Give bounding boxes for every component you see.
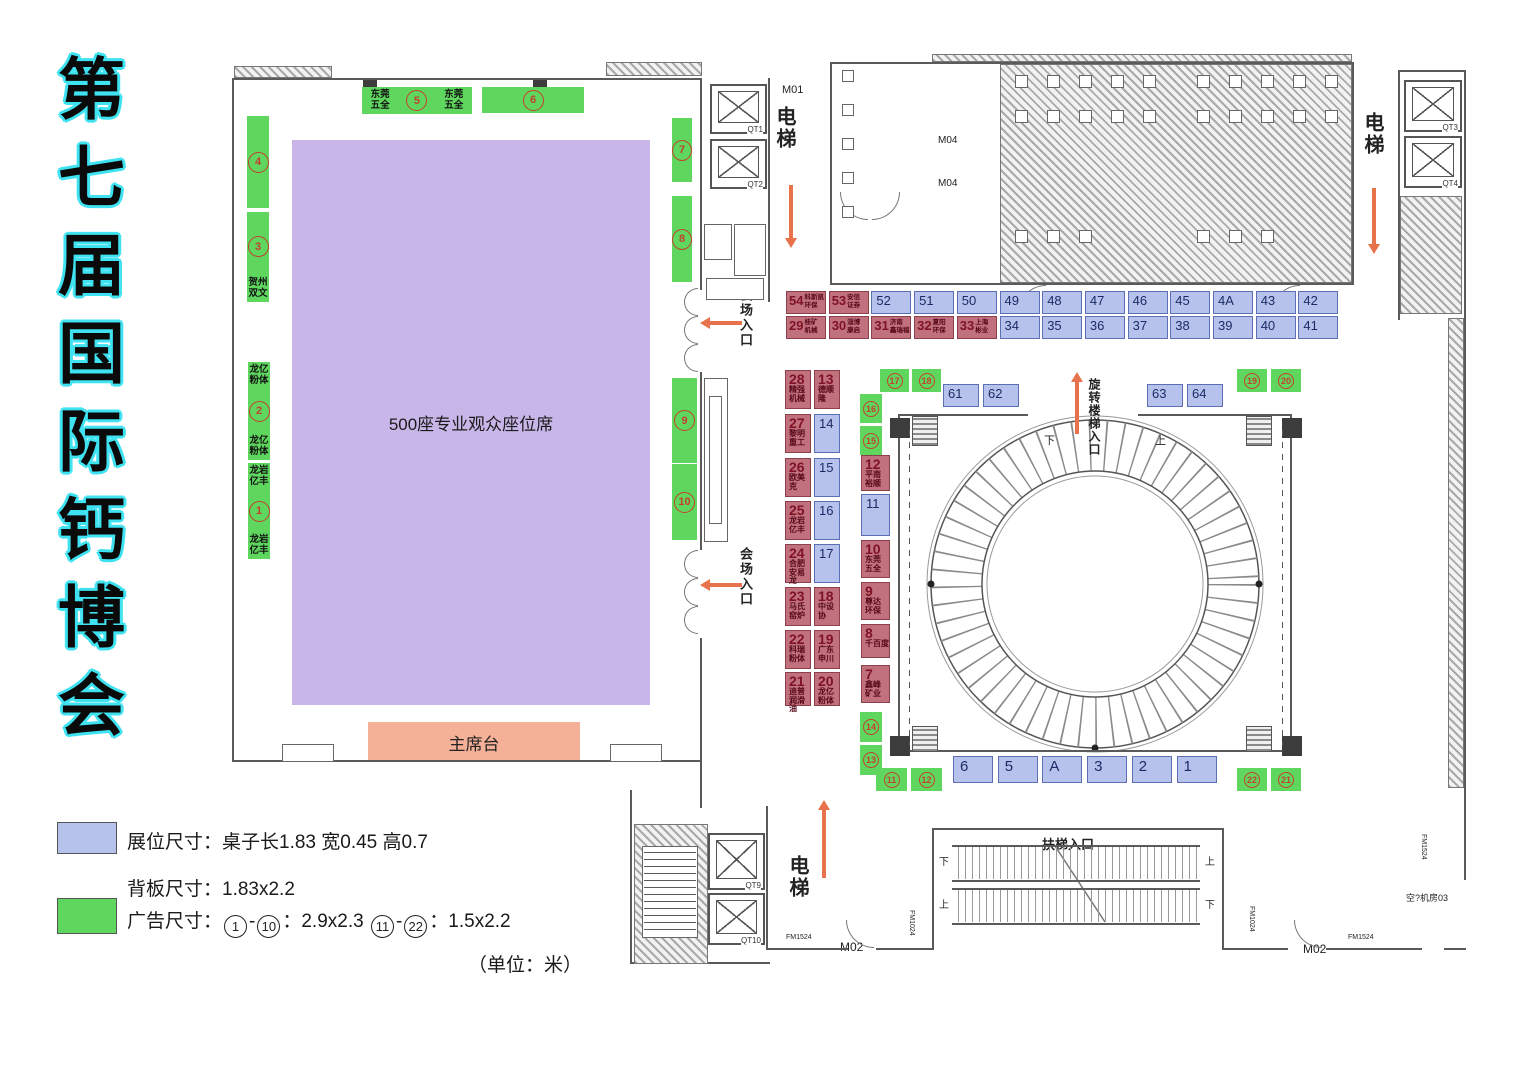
wall-segment bbox=[766, 806, 768, 950]
wall-segment bbox=[630, 790, 632, 964]
door-arc bbox=[684, 344, 698, 372]
elevator-id-label: QT3 bbox=[1442, 123, 1458, 132]
legend-ad-mid: ：2.9x2.3 bbox=[282, 911, 363, 932]
escalator-rung bbox=[1175, 890, 1176, 922]
escalator-rung bbox=[1056, 847, 1057, 879]
booth-1: 1 bbox=[1177, 756, 1217, 783]
elevator-cab bbox=[716, 900, 757, 934]
ad-small-16: 16 bbox=[860, 394, 882, 423]
ring-up-label: 上 bbox=[1155, 432, 1166, 448]
booth-31: 31济南鑫瑞福 bbox=[871, 316, 911, 339]
legend-ad-swatch bbox=[57, 898, 117, 934]
ad-number-circle: 9 bbox=[674, 410, 695, 431]
escalator-rung bbox=[979, 847, 980, 879]
escalator-up-left: 上 bbox=[939, 896, 949, 911]
escalator-rung bbox=[1014, 890, 1015, 922]
escalator-rung bbox=[1161, 890, 1162, 922]
booth-29: 29桂矿机械 bbox=[786, 316, 826, 339]
wall-segment bbox=[932, 828, 1224, 830]
elevator-cab bbox=[1412, 143, 1454, 177]
ad-number-circle: 11 bbox=[884, 772, 900, 788]
room-m04-b: M04 bbox=[938, 178, 957, 189]
booth-19: 19广东申川 bbox=[814, 630, 840, 669]
escalator-rung bbox=[1168, 890, 1169, 922]
banner-company-label: 贺州双文 bbox=[248, 278, 268, 299]
booth-22: 22科瑞粉体 bbox=[785, 630, 811, 669]
escalator-rung bbox=[1091, 847, 1092, 879]
furniture-item bbox=[1261, 75, 1274, 88]
ad-small-11: 11 bbox=[876, 768, 907, 791]
booth-company: 鑫峰矿业 bbox=[865, 681, 889, 698]
booth-18: 18中设协 bbox=[814, 587, 840, 626]
louver-block bbox=[1246, 726, 1272, 752]
ring-down-label: 下 bbox=[1044, 432, 1055, 448]
door-arc bbox=[1294, 920, 1322, 948]
escalator-down-left: 下 bbox=[939, 853, 949, 868]
ad-number-circle: 14 bbox=[863, 719, 879, 735]
escalator-rung bbox=[1105, 847, 1106, 879]
furniture-item bbox=[1015, 110, 1028, 123]
wall-segment bbox=[232, 78, 234, 762]
stair-tread bbox=[644, 915, 696, 916]
fm1524-bottom-right: FM1524 bbox=[1348, 934, 1374, 941]
spiral-staircase bbox=[890, 414, 1300, 754]
ad-number-circle: 10 bbox=[674, 492, 695, 513]
booth-54: 54科斯凯环保 bbox=[786, 291, 826, 314]
escalator-rung bbox=[1014, 847, 1015, 879]
title-char: 国 bbox=[58, 300, 125, 397]
elevator-cab bbox=[1412, 87, 1454, 121]
escalator-rung bbox=[1147, 847, 1148, 879]
elevator-id-label: QT9 bbox=[745, 881, 761, 890]
furniture-item bbox=[1015, 230, 1028, 243]
legend-ad-prefix: 广告尺寸： bbox=[127, 911, 222, 932]
booth-13: 13德顺隆 bbox=[814, 370, 840, 409]
booth-62: 62 bbox=[983, 384, 1019, 407]
booth-2: 2 bbox=[1132, 756, 1172, 783]
booth-14: 14 bbox=[814, 414, 840, 453]
elevator-cab bbox=[718, 91, 759, 123]
direction-arrow bbox=[1368, 188, 1380, 254]
ad-banner-5: 东莞五全5东莞五全 bbox=[362, 87, 472, 114]
furniture-item bbox=[842, 104, 854, 116]
title-char: 博 bbox=[58, 564, 125, 661]
hatched-area bbox=[1000, 64, 1352, 283]
legend-back-line: 背板尺寸：1.83x2.2 bbox=[127, 874, 295, 901]
furniture-item bbox=[1047, 75, 1060, 88]
booth-number: 29 bbox=[789, 319, 803, 332]
escalator-rung bbox=[1189, 847, 1190, 879]
booth-6: 6 bbox=[953, 756, 993, 783]
wall-segment bbox=[932, 828, 934, 950]
escalator-rung bbox=[1084, 847, 1085, 879]
escalator-rung bbox=[958, 847, 959, 879]
pillar-block bbox=[1282, 418, 1302, 438]
booth-number: 32 bbox=[917, 319, 931, 332]
furniture-item bbox=[1261, 230, 1274, 243]
ad-small-22: 22 bbox=[1237, 768, 1267, 791]
elevator-cab bbox=[716, 840, 757, 879]
furniture-item bbox=[1079, 75, 1092, 88]
ad-banner-9: 9 bbox=[672, 378, 697, 463]
booth-5: 5 bbox=[998, 756, 1038, 783]
escalator-rung bbox=[1056, 890, 1057, 922]
hatched-area bbox=[1448, 318, 1464, 788]
louver-block bbox=[912, 416, 938, 446]
ad-number-circle: 5 bbox=[406, 90, 427, 111]
hatched-area bbox=[932, 54, 1352, 62]
furniture-item bbox=[1293, 75, 1306, 88]
furniture-item bbox=[1325, 75, 1338, 88]
legend-ad-suffix: ：1.5x2.2 bbox=[429, 911, 510, 932]
pillar-block bbox=[890, 418, 910, 438]
escalator-rung bbox=[1000, 890, 1001, 922]
furniture-item bbox=[1079, 110, 1092, 123]
stair-tread bbox=[644, 852, 696, 853]
escalator-rung bbox=[1147, 890, 1148, 922]
booth-company: 上海彬业 bbox=[975, 319, 988, 334]
booth-3: 3 bbox=[1087, 756, 1127, 783]
escalator-rung bbox=[1077, 890, 1078, 922]
elevator-id-label: QT1 bbox=[747, 125, 763, 134]
booth-27: 27黎明重工 bbox=[785, 414, 811, 453]
ad-number-circle: 6 bbox=[523, 90, 544, 111]
escalator-rung bbox=[1007, 890, 1008, 922]
elevator-label-right: 电梯 bbox=[1358, 112, 1387, 156]
escalator-rung bbox=[1168, 847, 1169, 879]
title-char: 第 bbox=[58, 36, 125, 133]
escalator-rung bbox=[1063, 890, 1064, 922]
ad-banner-4: 4 bbox=[247, 116, 269, 208]
hatched-area bbox=[606, 62, 702, 76]
escalator-rung bbox=[1189, 890, 1190, 922]
escalator-rung bbox=[1154, 847, 1155, 879]
door-arc bbox=[872, 192, 900, 220]
fm1024-bottom-right: FM1024 bbox=[1248, 906, 1255, 932]
wall-segment bbox=[952, 880, 1200, 882]
banner-company-label: 龙亿粉体 bbox=[249, 365, 269, 386]
wall-segment bbox=[1224, 948, 1288, 950]
legend-circle-10: 10 bbox=[257, 915, 280, 938]
legend-unit: （单位：米） bbox=[468, 950, 582, 977]
booth-company: 夏阳环保 bbox=[933, 319, 946, 334]
booth-company: 德顺隆 bbox=[818, 386, 839, 403]
furniture-item bbox=[1261, 110, 1274, 123]
escalator-rung bbox=[986, 847, 987, 879]
booth-company: 桂矿机械 bbox=[804, 319, 817, 334]
elevator-qt2: QT2 bbox=[710, 139, 767, 189]
booth-35: 35 bbox=[1042, 316, 1082, 339]
escalator-rung bbox=[979, 890, 980, 922]
wall-segment bbox=[768, 948, 848, 950]
wall-segment bbox=[700, 638, 702, 762]
booth-company: 迪普润滑油 bbox=[789, 688, 810, 714]
ad-number-circle: 18 bbox=[919, 373, 935, 389]
ad-number-circle: 17 bbox=[887, 373, 903, 389]
wall-segment bbox=[1352, 62, 1354, 285]
title-char: 届 bbox=[58, 212, 125, 309]
legend-ad-dash1: - bbox=[249, 911, 255, 932]
wall-segment bbox=[700, 78, 702, 290]
booth-24: 24合肥安易龙 bbox=[785, 544, 811, 583]
escalator-rung bbox=[993, 847, 994, 879]
escalator-rung bbox=[1042, 890, 1043, 922]
escalator-rung bbox=[1028, 847, 1029, 879]
stair-tread bbox=[644, 873, 696, 874]
escalator-rung bbox=[1119, 890, 1120, 922]
escalator-rung bbox=[1000, 847, 1001, 879]
wall-segment bbox=[768, 78, 770, 302]
escalator-rung bbox=[1049, 890, 1050, 922]
stair-tread bbox=[644, 901, 696, 902]
wall-segment bbox=[952, 923, 1200, 925]
furniture-item bbox=[842, 206, 854, 218]
furniture-item bbox=[1229, 75, 1242, 88]
escalator-rung bbox=[1133, 847, 1134, 879]
escalator-rung bbox=[1049, 847, 1050, 879]
booth-company: 龙亿粉体 bbox=[818, 688, 839, 705]
direction-arrow bbox=[818, 800, 830, 878]
booth-company: 精强机械 bbox=[789, 386, 810, 403]
louver-block bbox=[1246, 416, 1272, 446]
escalator-rung bbox=[986, 890, 987, 922]
wall-segment bbox=[952, 888, 1200, 890]
escalator-rung bbox=[958, 890, 959, 922]
ad-small-21: 21 bbox=[1271, 768, 1301, 791]
booth-company: 科瑞粉体 bbox=[789, 646, 810, 663]
dashed-line bbox=[1282, 430, 1283, 745]
escalator-rung bbox=[1140, 847, 1141, 879]
booth-number: 53 bbox=[832, 294, 846, 307]
furniture-item bbox=[1197, 230, 1210, 243]
ad-banner-1: 龙岩亿丰1龙岩亿丰 bbox=[248, 463, 270, 559]
escalator-rung bbox=[1112, 890, 1113, 922]
stair-tread bbox=[644, 859, 696, 860]
booth-company: 广东申川 bbox=[818, 646, 839, 663]
booth-47: 47 bbox=[1085, 291, 1125, 314]
escalator-rung bbox=[1021, 890, 1022, 922]
furniture-item bbox=[1293, 110, 1306, 123]
escalator-rung bbox=[1196, 847, 1197, 879]
legend-ad-line: 广告尺寸：1-10：2.9x2.3 11-22：1.5x2.2 bbox=[127, 906, 511, 938]
booth-17: 17 bbox=[814, 544, 840, 583]
booth-company: 东莞五全 bbox=[865, 556, 889, 573]
wall-segment bbox=[700, 762, 702, 808]
escalator-rung bbox=[1175, 847, 1176, 879]
room-m01: M01 bbox=[782, 84, 803, 96]
escalator-rung bbox=[1126, 890, 1127, 922]
booth-company: 尊达环保 bbox=[865, 598, 889, 615]
booth-45: 45 bbox=[1170, 291, 1210, 314]
furniture-item bbox=[1015, 75, 1028, 88]
escalator-rung bbox=[965, 847, 966, 879]
stair-tread bbox=[644, 908, 696, 909]
legend-booth-swatch bbox=[57, 822, 117, 854]
furniture-item bbox=[1325, 110, 1338, 123]
furniture-item bbox=[1229, 110, 1242, 123]
legend-ad-dash2: - bbox=[396, 911, 402, 932]
escalator-rung bbox=[1035, 847, 1036, 879]
ad-small-20: 20 bbox=[1271, 369, 1301, 392]
booth-25: 25龙岩亿丰 bbox=[785, 501, 811, 540]
booth-50: 50 bbox=[957, 291, 997, 314]
booth-number: 30 bbox=[832, 319, 846, 332]
elevator-label-bottom: 电梯 bbox=[783, 855, 812, 899]
stage-door-unit bbox=[610, 744, 662, 762]
banner-company-label: 龙岩亿丰 bbox=[249, 466, 269, 487]
stair-tread bbox=[644, 887, 696, 888]
booth-number: 54 bbox=[789, 294, 803, 307]
booth-36: 36 bbox=[1085, 316, 1125, 339]
wall-segment bbox=[1290, 414, 1292, 752]
booth-37: 37 bbox=[1128, 316, 1168, 339]
door-arc bbox=[684, 578, 698, 606]
escalator-up-right: 上 bbox=[1205, 853, 1215, 868]
floorplan-page: 500座专业观众座位席 主席台 电梯 电梯 电梯 会场入口 会场入口 旋转楼梯入… bbox=[0, 0, 1527, 1080]
fm1524-bottom-left: FM1524 bbox=[786, 934, 812, 941]
booth-4A: 4A bbox=[1213, 291, 1253, 314]
seating-area: 500座专业观众座位席 bbox=[292, 140, 650, 705]
wall-segment bbox=[830, 283, 1354, 285]
room-machine: 空?机房03 bbox=[1406, 891, 1448, 904]
booth-company: 合肥安易龙 bbox=[789, 560, 810, 586]
escalator-rung bbox=[1028, 890, 1029, 922]
escalator-rung bbox=[1007, 847, 1008, 879]
elevator-qt3: QT3 bbox=[1404, 80, 1462, 132]
room-qd-box bbox=[734, 224, 766, 276]
booth-A: A bbox=[1042, 756, 1082, 783]
booth-38: 38 bbox=[1170, 316, 1210, 339]
escalator-rung bbox=[1182, 890, 1183, 922]
booth-company: 龙岩亿丰 bbox=[789, 517, 810, 534]
booth-company: 黎明重工 bbox=[789, 430, 810, 447]
dashed-line bbox=[909, 430, 910, 745]
booth-12: 12平南裕顺 bbox=[861, 455, 890, 491]
furniture-item bbox=[1047, 110, 1060, 123]
escalator-rung bbox=[1105, 890, 1106, 922]
furniture-item bbox=[1197, 75, 1210, 88]
booth-company: 济南鑫瑞福 bbox=[890, 319, 910, 334]
wall-segment bbox=[1398, 70, 1466, 72]
booth-32: 32夏阳环保 bbox=[914, 316, 954, 339]
booth-7: 7鑫峰矿业 bbox=[861, 665, 890, 703]
ad-number-circle: 13 bbox=[863, 752, 879, 768]
ad-small-19: 19 bbox=[1237, 369, 1267, 392]
escalator-rung bbox=[1042, 847, 1043, 879]
wall-segment bbox=[876, 948, 932, 950]
booth-28: 28精强机械 bbox=[785, 370, 811, 409]
furniture-item bbox=[842, 70, 854, 82]
banner-company-label: 东莞五全 bbox=[444, 90, 464, 111]
door-arc bbox=[684, 288, 698, 316]
hatched-area bbox=[1400, 196, 1462, 314]
elevator-id-label: QT10 bbox=[741, 936, 761, 945]
wall-segment bbox=[700, 372, 702, 550]
wall-segment bbox=[898, 750, 1292, 752]
door-arc bbox=[684, 550, 698, 578]
ad-small-17: 17 bbox=[880, 369, 909, 392]
ad-banner-10: 10 bbox=[672, 464, 697, 540]
title-char: 际 bbox=[58, 388, 125, 485]
elevator-qt10: QT10 bbox=[708, 893, 765, 945]
booth-42: 42 bbox=[1298, 291, 1338, 314]
escalator-rung bbox=[1119, 847, 1120, 879]
booth-53: 53安信证券 bbox=[829, 291, 869, 314]
booth-9: 9尊达环保 bbox=[861, 582, 890, 620]
booth-8: 8千百度 bbox=[861, 624, 890, 658]
booth-20: 20龙亿粉体 bbox=[814, 672, 840, 706]
booth-11: 11 bbox=[861, 494, 890, 536]
escalator-rung bbox=[1070, 890, 1071, 922]
booth-21: 21迪普润滑油 bbox=[785, 672, 811, 706]
door-arc bbox=[684, 606, 698, 634]
fm1024-bottom-left: FM1024 bbox=[908, 910, 915, 936]
booth-company: 千百度 bbox=[865, 640, 889, 649]
ad-number-circle: 12 bbox=[919, 772, 935, 788]
wall-segment bbox=[898, 414, 900, 752]
booth-41: 41 bbox=[1298, 316, 1338, 339]
ad-small-12: 12 bbox=[911, 768, 942, 791]
escalator-rung bbox=[1133, 890, 1134, 922]
louver-block bbox=[912, 726, 938, 752]
legend-circle-11: 11 bbox=[371, 915, 394, 938]
stair-tread bbox=[644, 866, 696, 867]
escalator-rung bbox=[1021, 847, 1022, 879]
elevator-qt9: QT9 bbox=[708, 833, 765, 890]
booth-51: 51 bbox=[914, 291, 954, 314]
wall-segment bbox=[1326, 948, 1422, 950]
fm1524-right-edge: FM1524 bbox=[1420, 834, 1427, 860]
booth-46: 46 bbox=[1128, 291, 1168, 314]
elevator-label-top: 电梯 bbox=[770, 106, 799, 150]
stair-tread bbox=[644, 929, 696, 930]
booth-16: 16 bbox=[814, 501, 840, 540]
banner-company-label: 龙亿粉体 bbox=[249, 436, 269, 457]
ad-number-circle: 3 bbox=[248, 236, 269, 257]
elevator-qt1: QT1 bbox=[710, 84, 767, 134]
booth-49: 49 bbox=[1000, 291, 1040, 314]
escalator-rung bbox=[972, 847, 973, 879]
ad-number-circle: 15 bbox=[863, 433, 879, 449]
seating-label: 500座专业观众座位席 bbox=[389, 410, 553, 435]
booth-48: 48 bbox=[1042, 291, 1082, 314]
furniture-item bbox=[1111, 75, 1124, 88]
venue-entrance-bottom: 会场入口 bbox=[736, 547, 755, 607]
hatched-area bbox=[234, 66, 332, 78]
ad-banner-2: 龙亿粉体2龙亿粉体 bbox=[248, 362, 270, 460]
ad-number-circle: 20 bbox=[1278, 373, 1294, 389]
ad-number-circle: 22 bbox=[1244, 772, 1260, 788]
room-py-box bbox=[706, 278, 764, 300]
booth-34: 34 bbox=[1000, 316, 1040, 339]
furniture-item bbox=[1229, 230, 1242, 243]
escalator-rung bbox=[1112, 847, 1113, 879]
booth-30: 30淄博康启 bbox=[829, 316, 869, 339]
wall-segment bbox=[1464, 70, 1466, 880]
escalator-rung bbox=[993, 890, 994, 922]
wall-segment bbox=[1222, 828, 1224, 950]
booth-company: 淄博康启 bbox=[847, 319, 860, 334]
booth-15: 15 bbox=[814, 458, 840, 497]
elevator-cab bbox=[718, 146, 759, 178]
wall-segment bbox=[952, 845, 1200, 847]
ad-small-18: 18 bbox=[912, 369, 941, 392]
escalator-rung bbox=[1126, 847, 1127, 879]
title-char: 会 bbox=[58, 652, 125, 749]
booth-52: 52 bbox=[871, 291, 911, 314]
ad-small-15: 15 bbox=[860, 426, 882, 455]
escalator-rung bbox=[1091, 890, 1092, 922]
